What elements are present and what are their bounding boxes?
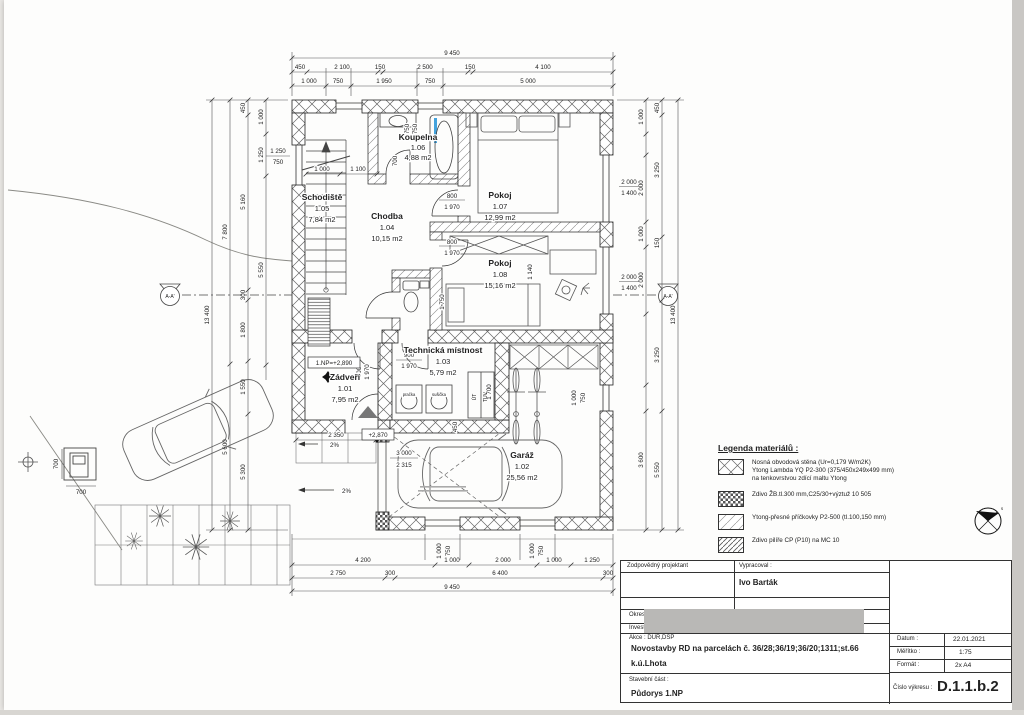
slope-label: 2% bbox=[342, 488, 351, 495]
dim-label: 300 bbox=[385, 570, 396, 577]
format-value: 2x A4 bbox=[955, 662, 971, 669]
dim-label: 2 350 bbox=[328, 432, 344, 439]
room-area: 25,56 m2 bbox=[506, 473, 537, 482]
dim-label: 4 100 bbox=[535, 64, 551, 71]
dim-label: 2 000 bbox=[638, 272, 645, 288]
room-name: Chodba bbox=[371, 211, 403, 221]
dim-label: 150 bbox=[375, 64, 386, 71]
compass-letter: s bbox=[1001, 506, 1003, 511]
dim-label: 2 500 bbox=[417, 64, 433, 71]
dim-label: 750 bbox=[580, 392, 587, 403]
dim-label: 1 000 bbox=[444, 557, 460, 564]
dim-label: 750 bbox=[425, 78, 436, 85]
dim-label: 5 300 bbox=[240, 464, 247, 480]
building-part-label: Stavební část : bbox=[629, 677, 669, 683]
load-bearing-walls bbox=[292, 100, 613, 530]
legend-item: Zdivo ŽB.tl.300 mm,C25/30+výztuž 10 505 bbox=[718, 491, 948, 507]
legend-swatch-loadbearing bbox=[718, 459, 744, 475]
scan-edge bbox=[0, 710, 1024, 715]
legend-swatch-brick-pier bbox=[718, 537, 744, 553]
dim-label: 750 bbox=[333, 78, 344, 85]
floor-level-label: 1.NP=+2,890 bbox=[316, 360, 353, 367]
dim-label: 4 200 bbox=[355, 557, 371, 564]
electric-meter-box bbox=[62, 448, 96, 486]
bicycles bbox=[507, 368, 546, 444]
dim-label: 450 bbox=[295, 64, 306, 71]
bedroom2-furniture bbox=[446, 236, 596, 326]
slope-arrows bbox=[298, 442, 334, 493]
redaction-bar bbox=[644, 609, 864, 633]
wc-fixtures bbox=[403, 281, 429, 312]
dim-label: 700 bbox=[76, 489, 87, 496]
dim-label: 1 970 bbox=[364, 364, 371, 380]
dim-label: 150 bbox=[465, 64, 476, 71]
format-label: Formát : bbox=[897, 662, 919, 668]
scale-label: Měřítko : bbox=[897, 649, 920, 655]
dim-label: 5 600 bbox=[222, 439, 229, 455]
dim-label: 300 bbox=[603, 570, 614, 577]
dim-label: 450 bbox=[654, 102, 661, 113]
parked-car bbox=[115, 369, 281, 491]
dim-label: 800 bbox=[447, 239, 458, 246]
garage-storage-shelves bbox=[510, 345, 598, 369]
drawing-number-label: Číslo výkresu : bbox=[893, 685, 932, 691]
garage-door-swing bbox=[389, 433, 500, 517]
dim-label: 700 bbox=[53, 458, 60, 469]
legend-item: Zdivo pilíře CP (P10) na MC 10 bbox=[718, 537, 948, 553]
dryer-label: sušička bbox=[432, 392, 447, 397]
room-number: 1.08 bbox=[493, 270, 508, 279]
bedroom1-furniture bbox=[466, 113, 570, 213]
room-name: Zádveří bbox=[330, 372, 361, 382]
dim-label: 1 400 bbox=[621, 285, 637, 292]
dim-label: 3 250 bbox=[654, 347, 661, 363]
room-area: 15,16 m2 bbox=[484, 281, 515, 290]
dim-label: 1 250 bbox=[258, 147, 265, 163]
dim-label: 2 000 bbox=[495, 557, 511, 564]
responsible-label: Zodpovědný projektant bbox=[627, 563, 688, 569]
dim-label: 1 000 bbox=[571, 390, 578, 406]
room-number: 1.07 bbox=[493, 202, 508, 211]
dim-label: 1 250 bbox=[584, 557, 600, 564]
room-number: 1.02 bbox=[515, 462, 530, 471]
prepared-by-label: Vypracoval : bbox=[739, 563, 772, 569]
title-block: Zodpovědný projektant Vypracoval : Ivo B… bbox=[620, 560, 1012, 703]
room-number: 1.01 bbox=[338, 384, 353, 393]
dim-label: 1 750 bbox=[439, 294, 446, 310]
property-boundary-curve bbox=[8, 190, 292, 261]
porch-level-label: +2,870 bbox=[368, 432, 388, 439]
heating-label: ÚT bbox=[471, 394, 478, 401]
dim-label: 3 600 bbox=[638, 452, 645, 468]
paving-grid bbox=[95, 433, 613, 585]
section-label: A-A' bbox=[663, 294, 672, 300]
north-compass-icon bbox=[975, 508, 1001, 534]
room-name: Garáž bbox=[510, 450, 534, 460]
project-title: Novostavby RD na parcelách č. 36/28;36/1… bbox=[631, 644, 859, 653]
dim-label: 1 550 bbox=[240, 379, 247, 395]
dim-label: 1 140 bbox=[527, 264, 534, 280]
dim-label: 450 bbox=[452, 421, 459, 432]
dim-label: 1 000 bbox=[258, 109, 265, 125]
dim-label: 150 bbox=[654, 237, 661, 248]
dim-label: 800 bbox=[447, 193, 458, 200]
material-legend: Legenda materiálů : Nosná obvodová stěna… bbox=[718, 443, 948, 560]
dim-label: 5 000 bbox=[520, 78, 536, 85]
room-number: 1.06 bbox=[411, 143, 426, 152]
dim-label: 1 400 bbox=[621, 190, 637, 197]
room-name: Schodiště bbox=[302, 192, 343, 202]
legend-text: Ytong Lambda YQ P2-300 (375/450x249x499 … bbox=[752, 467, 894, 475]
room-number: 1.03 bbox=[436, 357, 451, 366]
date-label: Datum : bbox=[897, 636, 918, 642]
dim-label: 1 000 bbox=[436, 543, 443, 559]
dim-label: 450 bbox=[240, 102, 247, 113]
room-number: 1.05 bbox=[315, 204, 330, 213]
survey-crosshair-icon bbox=[18, 452, 38, 472]
dim-label: 5 550 bbox=[654, 462, 661, 478]
legend-text: Ytong-přesné příčkovky P2-500 (tl.100,15… bbox=[752, 514, 886, 522]
dim-label: 1 000 bbox=[546, 557, 562, 564]
room-area: 10,15 m2 bbox=[371, 234, 402, 243]
dim-label: 1 000 bbox=[301, 78, 317, 85]
dim-label: 750 bbox=[538, 545, 545, 556]
dim-label: 2 000 bbox=[621, 179, 637, 186]
site-elements bbox=[8, 190, 292, 550]
dim-label: 1 000 bbox=[314, 166, 330, 173]
room-name: Technická místnost bbox=[404, 345, 483, 355]
dim-label: 1 000 bbox=[529, 543, 536, 559]
legend-item: Ytong-přesné příčkovky P2-500 (tl.100,15… bbox=[718, 514, 948, 530]
room-name: Pokoj bbox=[488, 190, 511, 200]
room-area: 5,79 m2 bbox=[429, 368, 456, 377]
legend-text: Nosná obvodová stěna (Ur=0,179 W/m2K) bbox=[752, 459, 894, 467]
drawing-number: D.1.1.b.2 bbox=[937, 678, 999, 695]
dim-label: 2 315 bbox=[396, 462, 412, 469]
legend-text: na tenkovrstvou zdící maltu Ytong bbox=[752, 475, 894, 483]
scale-value: 1:75 bbox=[959, 649, 972, 656]
scan-edge bbox=[1012, 0, 1024, 715]
dim-label: 1 800 bbox=[240, 322, 247, 338]
dim-label: 2 750 bbox=[330, 570, 346, 577]
dim-label: 750 bbox=[273, 159, 284, 166]
action-label: Akce : DUR,DSP bbox=[629, 635, 674, 641]
room-area: 12,99 m2 bbox=[484, 213, 515, 222]
room-area: 7,84 m2 bbox=[308, 215, 335, 224]
dimension-labels: 9 450 450 2 100 150 2 500 150 4 100 1 00… bbox=[53, 50, 677, 591]
legend-item: Nosná obvodová stěna (Ur=0,179 W/m2K) Yt… bbox=[718, 459, 948, 484]
dim-label: 700 bbox=[392, 155, 399, 166]
dim-label: 1 100 bbox=[350, 166, 366, 173]
dim-label: 3 000 bbox=[396, 450, 412, 457]
dim-label: 7 800 bbox=[222, 224, 229, 240]
dim-label: 13 400 bbox=[204, 305, 211, 324]
dim-label: 2 000 bbox=[638, 180, 645, 196]
dim-label: 13 400 bbox=[670, 305, 677, 324]
slope-label: 2% bbox=[330, 442, 339, 449]
trees bbox=[125, 506, 240, 560]
dim-label: 1 970 bbox=[444, 250, 460, 257]
dim-label: 2 000 bbox=[621, 274, 637, 281]
dim-label: 9 450 bbox=[444, 584, 460, 591]
room-number: 1.04 bbox=[380, 223, 395, 232]
legend-swatch-concrete bbox=[718, 491, 744, 507]
legend-swatch-partition bbox=[718, 514, 744, 530]
dim-label: 6 400 bbox=[492, 570, 508, 577]
dim-label: 300 bbox=[240, 289, 247, 300]
drawing-name: Půdorys 1.NP bbox=[631, 689, 683, 698]
dim-label: 750 bbox=[445, 545, 452, 556]
legend-title: Legenda materiálů : bbox=[718, 443, 948, 453]
dim-label: 5 550 bbox=[258, 262, 265, 278]
section-label: A-A' bbox=[165, 294, 174, 300]
dim-label: 1 950 bbox=[376, 78, 392, 85]
date-value: 22.01.2021 bbox=[953, 636, 986, 643]
dim-label: 1 250 bbox=[270, 148, 286, 155]
legend-text: Zdivo ŽB.tl.300 mm,C25/30+výztuž 10 505 bbox=[752, 491, 871, 499]
dim-label: 1 970 bbox=[444, 204, 460, 211]
dim-label: 1 970 bbox=[401, 363, 417, 370]
prepared-by-name: Ivo Barták bbox=[739, 578, 778, 587]
room-name: Pokoj bbox=[488, 258, 511, 268]
hot-water-label: TUV bbox=[483, 391, 489, 402]
room-area: 4,88 m2 bbox=[404, 153, 431, 162]
legend-text: Zdivo pilíře CP (P10) na MC 10 bbox=[752, 537, 839, 545]
room-name: Koupelna bbox=[399, 132, 438, 142]
dim-label: 1 000 bbox=[638, 109, 645, 125]
dim-label: 3 250 bbox=[654, 162, 661, 178]
cadastre: k.ú.Lhota bbox=[631, 659, 667, 668]
dim-label: 2 100 bbox=[334, 64, 350, 71]
dim-label: 5 160 bbox=[240, 194, 247, 210]
room-area: 7,95 m2 bbox=[331, 395, 358, 404]
washer-label: pračka bbox=[403, 392, 416, 397]
property-boundary-line bbox=[30, 416, 122, 550]
dim-label: 1 000 bbox=[638, 226, 645, 242]
dim-label: 9 450 bbox=[444, 50, 460, 57]
